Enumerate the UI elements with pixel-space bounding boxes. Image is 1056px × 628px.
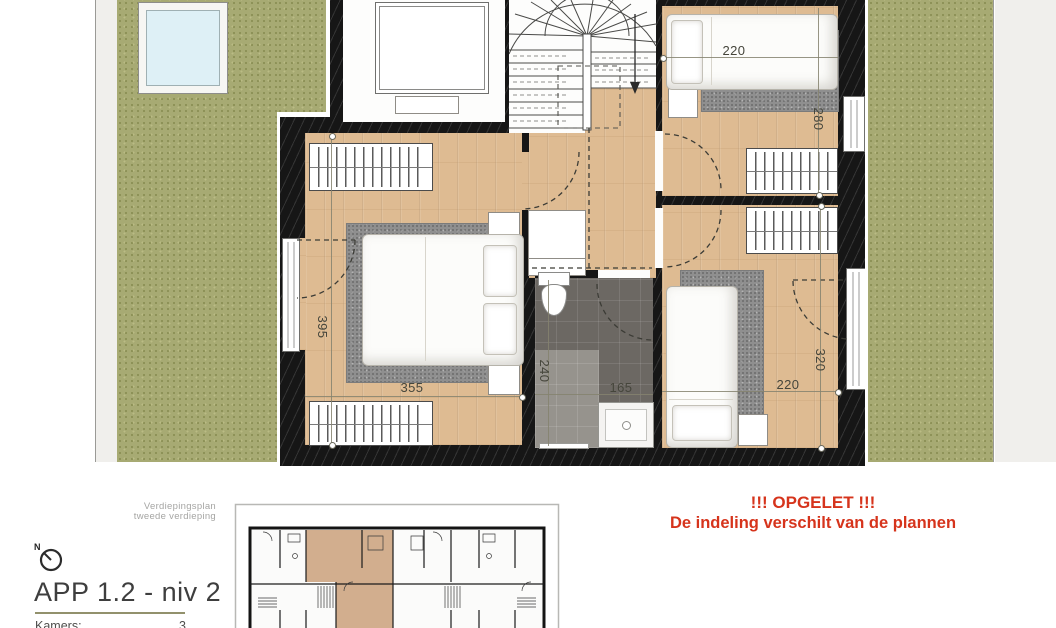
warning-line1: !!! OPGELET !!! (593, 492, 1033, 513)
warning-note: !!! OPGELET !!! De indeling verschilt va… (593, 492, 1033, 533)
plan-type-line2: tweede verdieping (116, 512, 216, 522)
dim-dot (660, 55, 667, 62)
apartment-title: APP 1.2 - niv 2 (34, 577, 221, 608)
dim-line-220-right (662, 391, 838, 392)
north-compass-icon (38, 547, 66, 573)
dim-label-bedroom2-depth: 280 (811, 99, 825, 139)
rooms-value: 3 (179, 619, 186, 628)
warning-line2: De indeling verschilt van de plannen (593, 513, 1033, 533)
dim-dot (835, 389, 842, 396)
floorplan-page: 395 355 240 165 220 280 320 220 Verdiepi… (0, 0, 1056, 628)
dim-label-bedroom3-width: 220 (768, 378, 808, 392)
dim-label-master-width: 355 (392, 381, 432, 395)
dim-dot (329, 442, 336, 449)
dim-label-bedroom2-width: 220 (714, 44, 754, 58)
dim-label-bathroom-depth: 240 (537, 351, 551, 391)
garden-right (868, 0, 993, 462)
dim-label-master-depth: 395 (315, 307, 329, 347)
apartment-plan: 395 355 240 165 220 280 320 220 (280, 0, 865, 466)
site-boundary-left (95, 0, 96, 462)
dim-line-395 (331, 135, 332, 445)
dim-line-320 (820, 205, 821, 448)
building-locator-plan (233, 502, 561, 628)
dim-dot (519, 394, 526, 401)
site-margin-left (95, 0, 117, 462)
dim-label-bathroom-width: 165 (601, 381, 641, 395)
site-boundary-right (993, 0, 994, 462)
site-margin-right (995, 0, 1056, 462)
dim-dot (329, 133, 336, 140)
garden-left-top (277, 0, 326, 112)
rooms-label: Kamers: (35, 619, 82, 628)
dim-dot (818, 203, 825, 210)
locator-plan-drawing (233, 502, 561, 628)
title-rule (35, 612, 185, 614)
rooms-row: Kamers: 3 (35, 619, 186, 628)
plan-type-label: Verdiepingsplan tweede verdieping (116, 502, 216, 522)
dim-line-355 (305, 396, 522, 397)
dim-dot (816, 192, 823, 199)
skylight-window (138, 2, 228, 94)
skylight-glass (146, 10, 220, 86)
dim-label-bedroom3-depth: 320 (813, 340, 827, 380)
dim-dot (818, 445, 825, 452)
